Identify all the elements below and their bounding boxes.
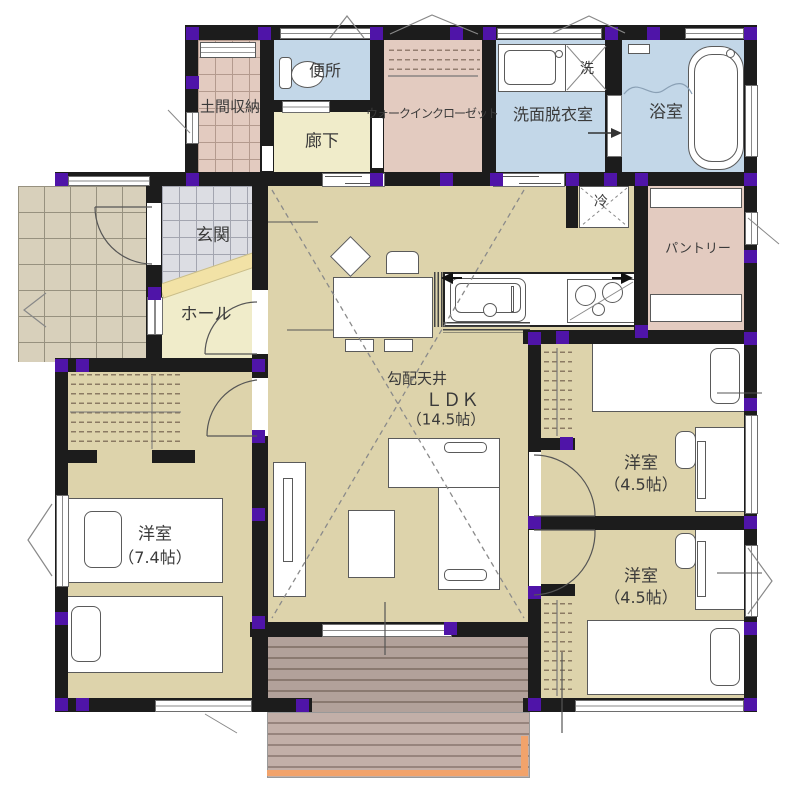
post-marker [744, 27, 757, 40]
post-marker [605, 27, 618, 40]
wall [185, 25, 198, 172]
post-marker [647, 27, 660, 40]
desk-monitor [697, 441, 706, 499]
post-marker [744, 622, 757, 635]
post-marker [76, 698, 89, 711]
post-marker [296, 699, 309, 712]
dining-table [333, 277, 433, 338]
label-entrance: 玄関 [196, 221, 230, 246]
desk-chair [675, 431, 696, 469]
toilet-door [282, 101, 330, 113]
post-marker [450, 27, 463, 40]
label-bathroom: 浴室 [649, 98, 683, 123]
pantry-shelf-top [650, 188, 742, 208]
pillow-se [710, 628, 740, 686]
sink-drain [483, 303, 497, 317]
bedroom-ne-closet [541, 346, 572, 437]
post-marker [370, 27, 383, 40]
sofa-cushion [444, 442, 487, 453]
post-marker [55, 698, 68, 711]
stove-burner [602, 282, 623, 303]
post-marker [55, 359, 68, 372]
deck-edge-right [521, 736, 528, 776]
shower-fixture [628, 44, 650, 54]
label-refrigerator: 冷 [594, 191, 608, 211]
label-bedroom-west: 洋室 [138, 520, 172, 545]
post-marker [148, 287, 161, 300]
post-marker [483, 27, 496, 40]
post-marker [252, 359, 265, 372]
vanity-basin [504, 50, 556, 85]
desk-monitor [697, 541, 706, 597]
post-marker [744, 698, 757, 711]
label-ldk-size: （14.5帖） [407, 409, 485, 430]
post-marker [744, 250, 757, 263]
window [685, 28, 744, 39]
label-bedroom-west-size: （7.4帖） [118, 544, 191, 568]
label-walk-in-closet: ウォークインクローゼット [366, 105, 498, 122]
pantry-shelf-bottom [650, 294, 742, 322]
bedroom-se-closet [541, 598, 572, 698]
bath-faucet [726, 49, 735, 58]
post-marker [252, 430, 265, 443]
hall-door-opening [252, 290, 268, 354]
window [745, 545, 758, 617]
window [280, 28, 374, 39]
post-marker [744, 516, 757, 529]
label-bedroom-se-size: （4.5帖） [604, 584, 677, 608]
post-marker [635, 173, 648, 186]
label-corridor: 廊下 [305, 127, 339, 152]
porch-tiles [18, 186, 147, 362]
post-marker [76, 359, 89, 372]
pillow-west-2 [71, 606, 101, 662]
stove-burner [592, 303, 605, 316]
deck-sliding-door [322, 624, 452, 637]
wic-hanger-rod [386, 44, 480, 78]
window [155, 700, 252, 712]
wall [634, 172, 648, 330]
post-marker [440, 173, 453, 186]
post-marker [528, 516, 541, 529]
post-marker [560, 437, 573, 450]
post-marker [490, 173, 503, 186]
dining-chair [345, 339, 374, 352]
label-washroom: 洗面脱衣室 [513, 101, 593, 125]
label-bedroom-se: 洋室 [624, 562, 658, 587]
bedroom-west-closet [68, 374, 183, 450]
post-marker [635, 325, 648, 338]
bathtub-inner [694, 54, 738, 162]
wall [152, 450, 195, 463]
post-marker [186, 76, 199, 89]
stove-burner [575, 285, 596, 306]
window [745, 85, 758, 157]
window [745, 415, 758, 514]
wall [55, 172, 757, 186]
label-doma-storage: 土間収納 [200, 96, 260, 117]
window [68, 176, 150, 186]
post-marker [744, 332, 757, 345]
floor-plan: 土間収納 便所 廊下 ウォークインクローゼット 洗面脱衣室 洗 浴室 玄関 ホー… [0, 0, 790, 800]
opening [262, 146, 273, 171]
sofa-cushion [444, 569, 487, 581]
post-marker [186, 173, 199, 186]
window [745, 212, 758, 245]
post-marker [252, 508, 265, 521]
counter-front-edge [443, 320, 530, 333]
post-marker [55, 173, 68, 186]
label-washer: 洗 [580, 58, 594, 78]
bathroom-door [607, 95, 622, 157]
window [147, 297, 163, 335]
vanity-faucet [555, 50, 563, 58]
post-marker [744, 173, 757, 186]
post-marker [528, 586, 541, 599]
post-marker [186, 27, 199, 40]
post-marker [566, 173, 579, 186]
wall [528, 516, 757, 530]
dining-chair [384, 339, 413, 352]
wall [62, 450, 97, 463]
label-pantry: パントリー [665, 238, 731, 257]
deck-edge-bottom [267, 770, 528, 776]
pillow-ne [710, 348, 740, 404]
sink-faucet [511, 286, 514, 312]
post-marker [252, 616, 265, 629]
post-marker [55, 612, 68, 625]
window [575, 700, 744, 712]
post-marker [528, 698, 541, 711]
window [186, 112, 199, 144]
label-bedroom-ne: 洋室 [624, 449, 658, 474]
post-marker [444, 622, 457, 635]
tv [283, 478, 293, 562]
post-marker [528, 332, 541, 345]
bedroom-west-door-opening [252, 378, 268, 436]
wood-deck-outer [267, 712, 530, 778]
dining-chair [386, 251, 419, 274]
post-marker [556, 331, 569, 344]
post-marker [744, 398, 757, 411]
sliding-door [493, 173, 565, 187]
label-hall: ホール [181, 300, 232, 325]
window [56, 495, 69, 587]
wall [482, 25, 496, 172]
post-marker [258, 27, 271, 40]
entrance-door-opening [147, 203, 161, 265]
counter-side-edge [432, 272, 443, 327]
desk-chair [675, 533, 696, 569]
opening [372, 118, 383, 168]
bedroom-ne-door-opening [529, 452, 541, 516]
coffee-table [348, 510, 395, 578]
pillow-west-1 [84, 511, 122, 568]
doma-shelf [200, 42, 256, 58]
label-bedroom-ne-size: （4.5帖） [604, 471, 677, 495]
window [497, 28, 602, 39]
post-marker [604, 173, 617, 186]
post-marker [370, 173, 383, 186]
label-toilet: 便所 [309, 57, 341, 81]
